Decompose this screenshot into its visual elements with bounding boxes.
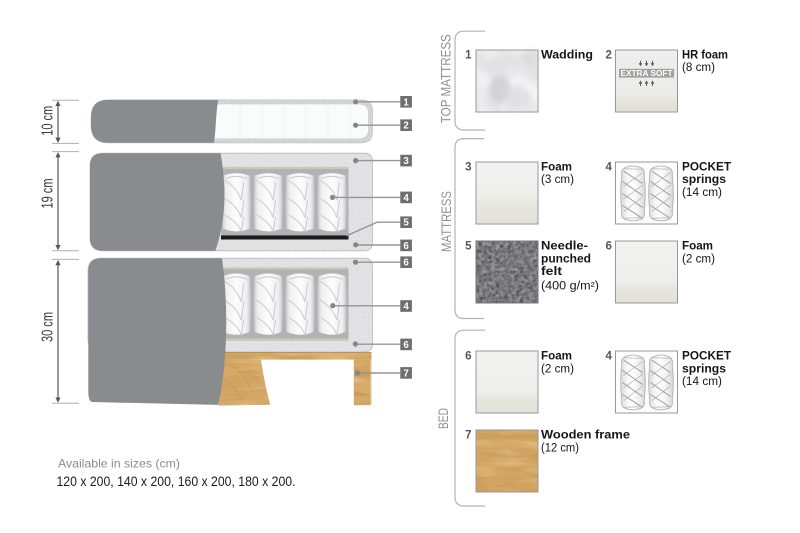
- svg-text:4: 4: [403, 302, 409, 313]
- svg-text:6: 6: [465, 351, 471, 363]
- svg-text:springs: springs: [682, 363, 726, 375]
- svg-text:6: 6: [605, 241, 611, 253]
- svg-text:(2 cm): (2 cm): [541, 363, 574, 375]
- svg-text:120 x 200, 140 x 200, 160 x 20: 120 x 200, 140 x 200, 160 x 200, 180 x 2…: [57, 474, 296, 489]
- svg-text:MATTRESS: MATTRESS: [439, 191, 454, 252]
- svg-text:3: 3: [465, 162, 471, 174]
- svg-text:4: 4: [605, 162, 612, 174]
- svg-text:(14 cm): (14 cm): [682, 187, 722, 199]
- svg-text:19 cm: 19 cm: [40, 179, 57, 209]
- svg-text:5: 5: [465, 241, 472, 253]
- svg-text:BED: BED: [436, 408, 451, 429]
- svg-text:6: 6: [403, 258, 409, 269]
- svg-text:30 cm: 30 cm: [40, 312, 57, 342]
- svg-text:Foam: Foam: [682, 241, 713, 253]
- svg-text:(400 g/m²): (400 g/m²): [541, 280, 599, 292]
- svg-text:Foam: Foam: [541, 351, 572, 363]
- svg-text:punched: punched: [541, 253, 591, 265]
- svg-text:2: 2: [605, 50, 611, 62]
- svg-text:2: 2: [403, 121, 409, 132]
- svg-text:5: 5: [403, 218, 409, 229]
- svg-text:4: 4: [605, 351, 612, 363]
- svg-text:Needle-: Needle-: [541, 241, 588, 253]
- svg-text:POCKET: POCKET: [682, 162, 731, 174]
- svg-text:7: 7: [403, 368, 409, 379]
- svg-text:(8 cm): (8 cm): [682, 62, 715, 74]
- svg-text:HR foam: HR foam: [682, 50, 728, 62]
- svg-text:6: 6: [403, 340, 409, 351]
- svg-text:7: 7: [465, 430, 471, 442]
- svg-text:Wadding: Wadding: [541, 50, 593, 62]
- svg-text:1: 1: [403, 97, 409, 108]
- svg-text:TOP MATTRESS: TOP MATTRESS: [439, 34, 454, 123]
- svg-text:(2 cm): (2 cm): [682, 253, 715, 265]
- svg-text:EXTRA SOFT: EXTRA SOFT: [621, 68, 674, 78]
- svg-text:Foam: Foam: [541, 162, 572, 174]
- svg-text:POCKET: POCKET: [682, 351, 731, 363]
- svg-text:3: 3: [403, 156, 409, 167]
- svg-text:springs: springs: [682, 174, 726, 186]
- svg-text:4: 4: [403, 193, 409, 204]
- svg-text:Wooden frame: Wooden frame: [541, 430, 630, 442]
- svg-text:6: 6: [403, 241, 409, 252]
- svg-text:1: 1: [465, 50, 472, 62]
- svg-text:10 cm: 10 cm: [40, 106, 57, 136]
- svg-text:(3 cm): (3 cm): [541, 174, 574, 186]
- svg-text:felt: felt: [541, 266, 562, 278]
- svg-text:(12 cm): (12 cm): [541, 442, 579, 454]
- svg-text:Available in sizes (cm): Available in sizes (cm): [58, 457, 180, 471]
- svg-text:(14 cm): (14 cm): [682, 376, 722, 388]
